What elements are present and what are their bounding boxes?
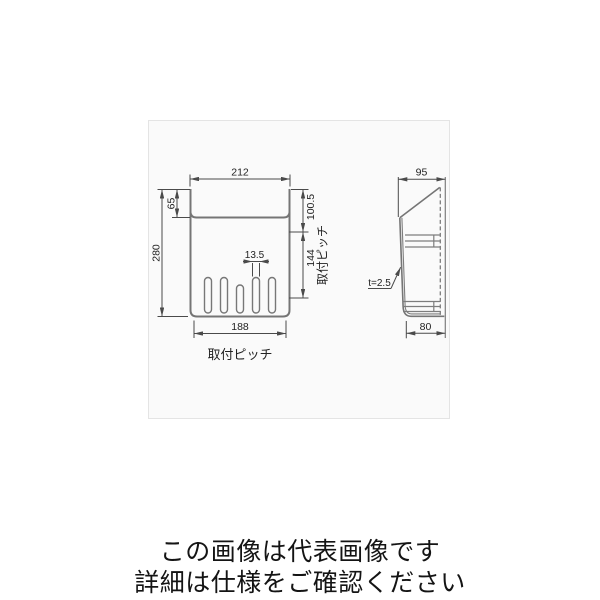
dim-bottom-pitch-value: 188 <box>231 321 249 333</box>
side-top-slope-edge <box>400 187 440 217</box>
front-view: 212 65 280 100.5 144 取付ピッチ <box>151 167 330 363</box>
slot-1 <box>205 278 212 314</box>
side-front-face-inner <box>402 218 440 314</box>
caption: この画像は代表画像です 詳細は仕様をご確認ください <box>0 537 600 599</box>
bottom-pitch-label: 取付ピッチ <box>207 347 272 362</box>
slot-pattern <box>205 278 276 314</box>
dim-top-depth-value: 95 <box>416 167 428 179</box>
right-pitch-label: 取付ピッチ <box>316 225 330 285</box>
slot-2 <box>221 278 228 314</box>
slot-5 <box>269 278 276 314</box>
thickness-label: t=2.5 <box>368 278 391 289</box>
dim-right-upper-value: 100.5 <box>305 194 317 220</box>
drawing-panel: 212 65 280 100.5 144 取付ピッチ <box>148 120 450 419</box>
thickness-callout: t=2.5 <box>368 267 401 289</box>
dim-bottom-depth-value: 80 <box>420 321 432 333</box>
dim-left-group: 65 280 <box>151 190 191 317</box>
caption-line1: この画像は代表画像です <box>0 537 600 568</box>
slot-4 <box>253 278 260 314</box>
dim-total-height-value: 280 <box>151 244 163 262</box>
page: 212 65 280 100.5 144 取付ピッチ <box>0 0 600 600</box>
dim-flange-height-value: 65 <box>166 198 178 210</box>
dim-top-width: 212 <box>190 167 290 187</box>
dim-right-group: 100.5 144 取付ピッチ <box>289 190 330 299</box>
front-panel-top-edge <box>191 213 290 218</box>
dim-bottom-depth: 80 <box>406 321 445 338</box>
dim-slot-width-value: 13.5 <box>245 250 265 261</box>
lower-hook-band <box>403 302 441 312</box>
upper-hook-band <box>405 235 440 247</box>
caption-line2: 詳細は仕様をご確認ください <box>0 568 600 599</box>
dim-top-depth: 95 <box>398 167 445 218</box>
dim-bottom-pitch: 188 取付ピッチ <box>194 321 286 363</box>
slot-3 <box>237 285 244 313</box>
side-view: 95 80 t=2.5 <box>368 167 445 339</box>
dim-slot-width: 13.5 <box>243 250 269 277</box>
dim-top-width-value: 212 <box>231 167 249 179</box>
technical-drawing: 212 65 280 100.5 144 取付ピッチ <box>149 121 449 418</box>
